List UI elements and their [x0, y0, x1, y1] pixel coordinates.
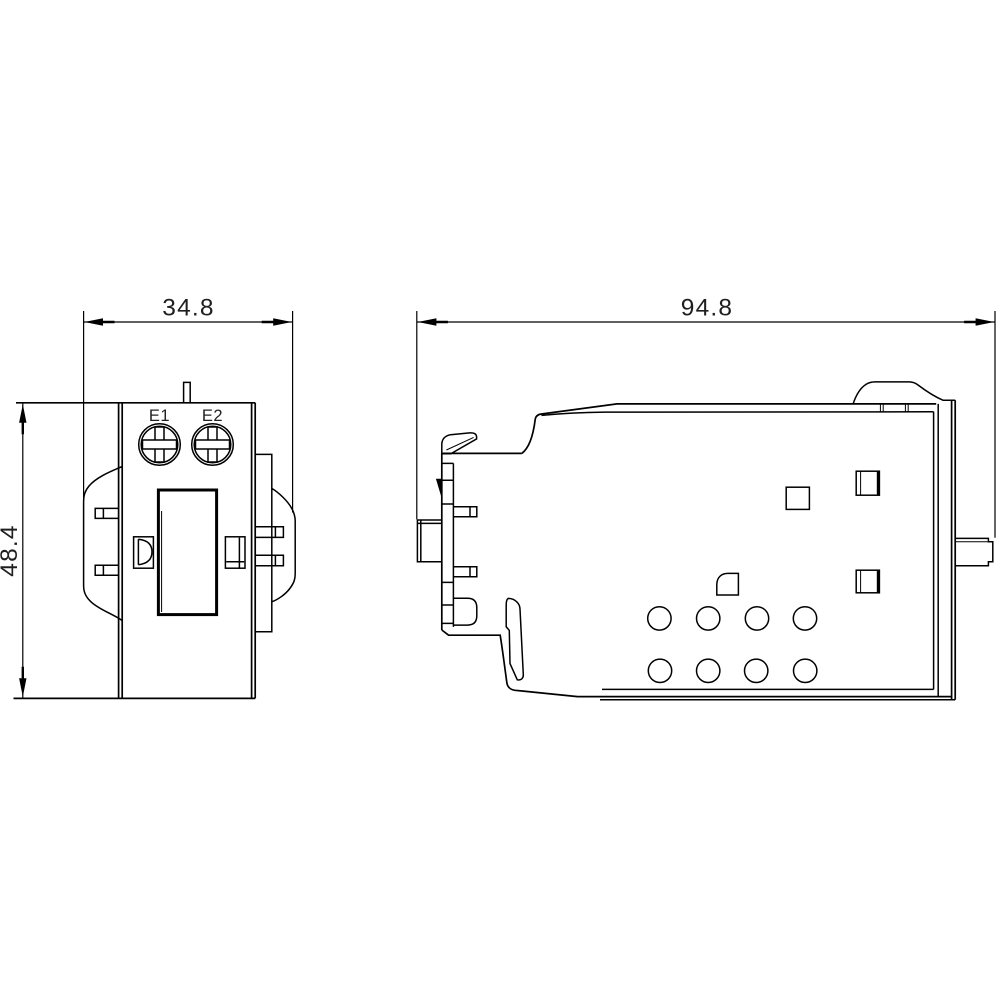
technical-drawing: 34.8 48.4	[0, 0, 1000, 1000]
square-cutout	[786, 487, 809, 509]
front-right-mount	[255, 454, 295, 631]
rail-strip-segments	[442, 463, 454, 623]
rail-tab	[453, 507, 476, 517]
terminal-label-e1: E1	[149, 407, 170, 425]
mount-hook	[442, 433, 477, 454]
hole	[697, 607, 720, 630]
hole	[697, 659, 720, 682]
square-cutout	[856, 471, 879, 495]
mount-tab	[95, 508, 118, 518]
front-body-outline	[14, 382, 256, 698]
window-frame	[158, 490, 216, 615]
hole	[745, 607, 768, 630]
arrowhead-right	[262, 318, 292, 325]
hump-base-ticks	[880, 404, 908, 412]
pin-outline	[955, 538, 993, 565]
interior-slot	[506, 598, 523, 680]
front-left-mount	[84, 467, 123, 621]
rail-flag	[436, 479, 442, 499]
arrowhead-left	[418, 318, 448, 325]
mount-wave	[272, 488, 295, 601]
hole	[745, 659, 768, 682]
rounded-corner-cutout	[717, 573, 739, 595]
front-height-dimension: 48.4	[0, 403, 27, 697]
hole	[794, 659, 817, 682]
square-frame	[856, 570, 879, 593]
bottom-edge-outer	[442, 630, 952, 697]
mount-tab	[255, 555, 283, 566]
clip-latch	[138, 539, 152, 565]
rail-tab	[453, 567, 476, 577]
arrowhead-right	[964, 318, 994, 325]
mount-plate	[255, 454, 272, 631]
arrowhead-top	[19, 404, 26, 434]
screw-slot-horizontal	[196, 440, 230, 449]
front-height-value: 48.4	[0, 524, 23, 576]
hole	[648, 659, 671, 682]
left-plunger	[417, 520, 441, 562]
top-pin	[184, 382, 191, 402]
front-center-window	[158, 490, 216, 615]
clip-body	[225, 537, 245, 568]
terminal-screw-e1: E1	[139, 407, 181, 466]
side-width-dimension: 94.8	[417, 295, 995, 538]
mount-tab	[95, 565, 118, 575]
front-clip-left	[134, 537, 154, 568]
side-interior-holes	[648, 607, 817, 683]
side-right-pin	[955, 538, 993, 565]
clip-latch	[226, 538, 244, 568]
screw-slot-horizontal	[143, 440, 177, 449]
front-clip-right	[225, 537, 245, 568]
arrowhead-left	[84, 318, 114, 325]
hole	[648, 607, 671, 630]
side-interior-squares	[717, 471, 880, 595]
side-rail-mount	[417, 433, 476, 630]
square-cutout	[856, 570, 879, 593]
rail-foot	[453, 598, 476, 625]
mount-wave	[84, 467, 123, 621]
drawing-canvas: 34.8 48.4	[0, 0, 1000, 1000]
top-edge-inner	[542, 412, 934, 416]
front-view: 34.8 48.4	[0, 295, 295, 699]
terminal-screw-e2: E2	[192, 407, 234, 466]
top-hump	[853, 382, 955, 404]
square-frame	[856, 471, 879, 495]
hole	[793, 607, 816, 630]
side-body-outline	[442, 382, 955, 700]
side-view: 94.8	[417, 295, 995, 700]
mount-tab	[255, 527, 283, 538]
terminal-label-e2: E2	[202, 407, 223, 425]
side-width-value: 94.8	[681, 295, 733, 322]
front-width-value: 34.8	[162, 295, 214, 322]
arrowhead-bottom	[19, 667, 26, 697]
